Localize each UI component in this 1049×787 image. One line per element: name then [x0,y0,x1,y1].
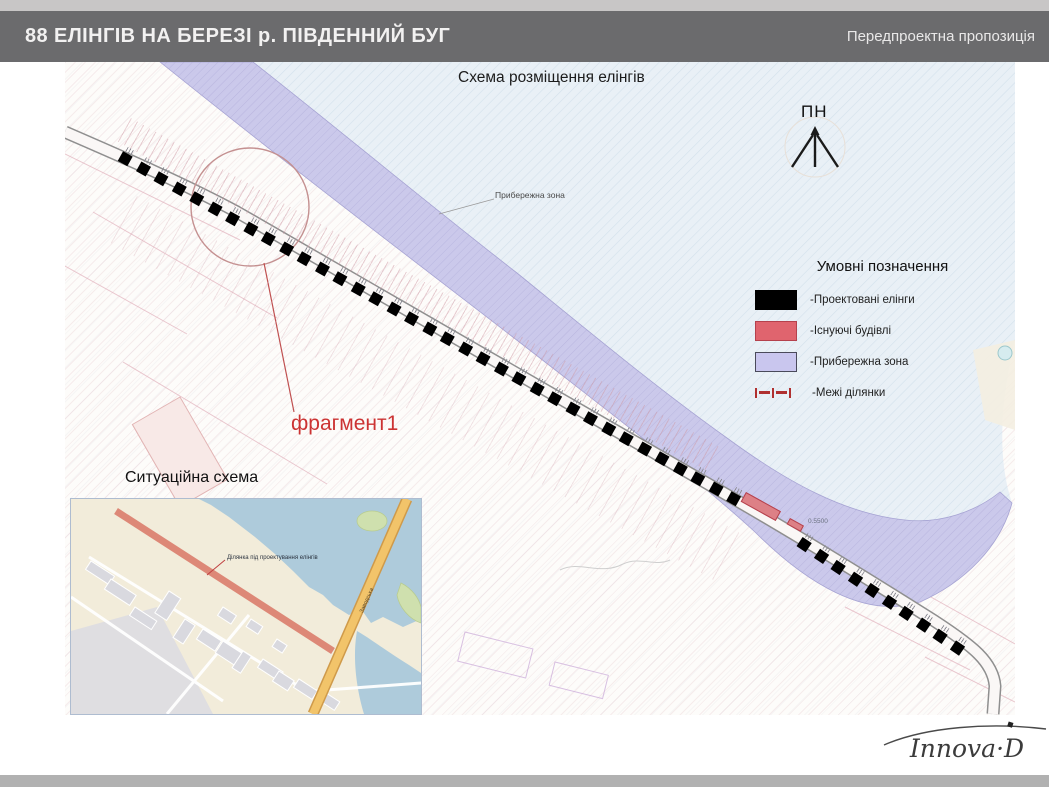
title-bar: 88 ЕЛІНГІВ НА БЕРЕЗІ р. ПІВДЕННИЙ БУГ Пе… [0,11,1049,62]
inset-site-label: Ділянка під проектування елінгів [227,555,318,561]
situation-map-drawing: Заводська Ділянка під проектування елінг… [71,499,421,714]
outlined-buildings [458,632,609,699]
legend-swatch [755,290,797,310]
legend-swatch [755,352,797,372]
legend-item-label: -Прибережна зона [810,356,908,368]
pale-building [132,397,227,507]
situation-map: Заводська Ділянка під проектування елінг… [70,498,422,715]
plan-title: Схема розміщення елінгів [458,69,645,87]
north-label: ПН [801,102,828,122]
contour-line [560,560,670,570]
legend-item-label: -Існуючі будівлі [810,325,891,337]
slide-root: 88 ЕЛІНГІВ НА БЕРЕЗІ р. ПІВДЕННИЙ БУГ Пе… [0,0,1049,787]
legend-swatch [755,321,797,341]
legend-item: -Існуючі будівлі [755,320,1010,341]
bottom-bar [0,775,1049,787]
fragment-label: фрагмент1 [291,412,398,436]
north-arrow: ПН [765,102,865,182]
legend-items: -Проектовані елінги-Існуючі будівлі-Приб… [755,289,1010,403]
legend-item: -Межі ділянки [755,382,1010,403]
legend-item-label: -Проектовані елінги [810,294,915,306]
slide-subtitle: Передпроектна пропозиція [847,28,1035,45]
legend-title: Умовні позначення [755,258,1010,275]
logo-text: Innova·D [888,734,1046,763]
north-arrow-icon [765,120,865,176]
legend-swatch-dashed-line [755,387,801,399]
dimension-label: 0.5500 [808,518,828,525]
slide-title: 88 ЕЛІНГІВ НА БЕРЕЗІ р. ПІВДЕННИЙ БУГ [25,25,450,48]
coastal-zone-label: Прибережна зона [495,190,565,200]
legend-item: -Прибережна зона [755,351,1010,372]
legend: Умовні позначення -Проектовані елінги-Іс… [755,258,1010,413]
top-strip [0,0,1049,11]
inset-green [357,511,387,531]
legend-item: -Проектовані елінги [755,289,1010,310]
legend-item-label: -Межі ділянки [812,387,885,399]
logo: Innova·D [880,718,1049,770]
inset-title: Ситуаційна схема [125,469,258,487]
